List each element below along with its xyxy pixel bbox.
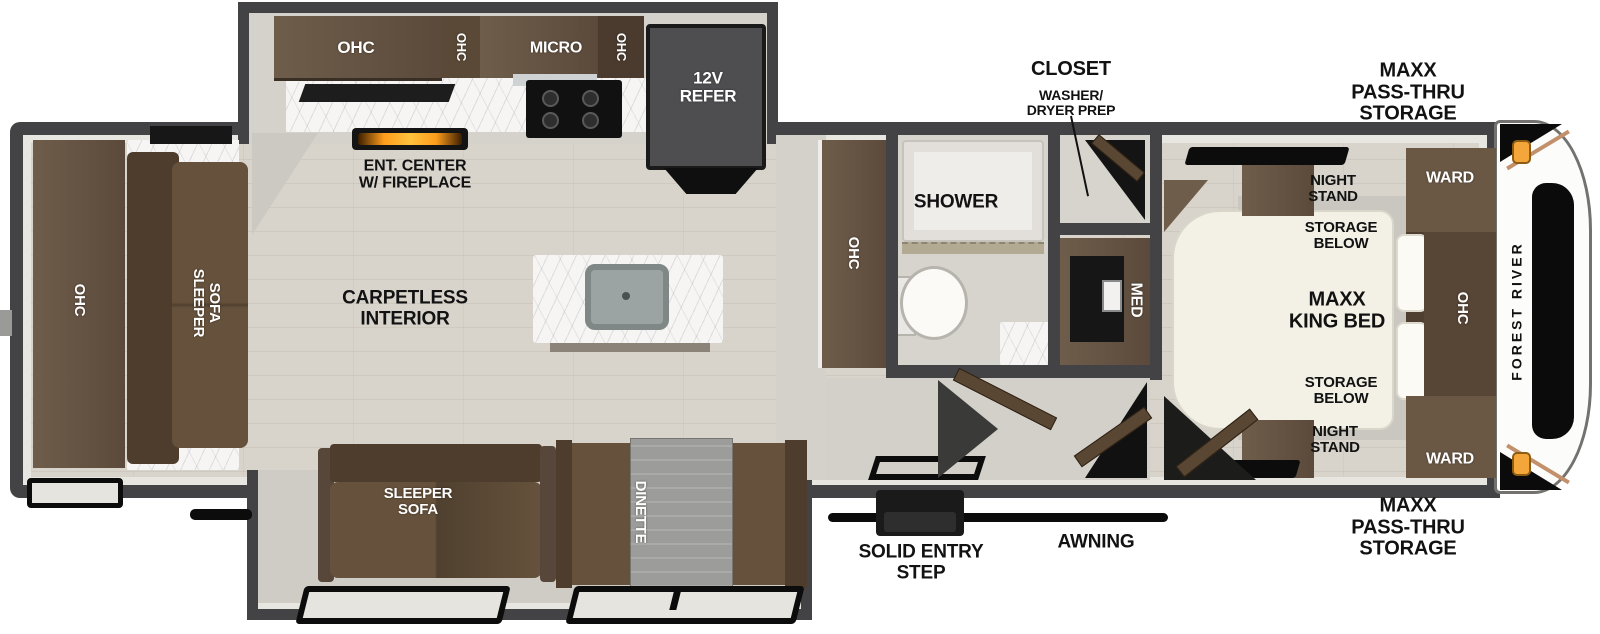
label-pantry-ohc: OHC bbox=[845, 237, 861, 270]
slide-window-dinette bbox=[565, 586, 804, 624]
cooktop-burner-4 bbox=[582, 112, 599, 129]
label-carpetless: CARPETLESS INTERIOR bbox=[342, 288, 468, 329]
cooktop-burner-1 bbox=[542, 90, 559, 107]
night-stand-top bbox=[1242, 158, 1314, 216]
windshield-decal bbox=[1532, 183, 1574, 439]
slide-window-sofa bbox=[295, 586, 510, 624]
hitch-stub bbox=[0, 310, 12, 336]
slide-sofa-back bbox=[330, 444, 542, 482]
sink-drain bbox=[622, 292, 630, 300]
med-basin bbox=[1102, 280, 1122, 312]
bath-wall-left bbox=[886, 135, 898, 378]
label-dinette: DINETTE bbox=[632, 481, 648, 544]
dinette-bench-left bbox=[572, 443, 630, 585]
label-entry-step: SOLID ENTRY STEP bbox=[859, 542, 984, 583]
label-ward-bottom: WARD bbox=[1426, 450, 1474, 467]
bath-closet-wall bbox=[1048, 135, 1060, 378]
label-night-stand-bottom: NIGHT STAND bbox=[1310, 424, 1360, 456]
slide-sofa-arm-right bbox=[540, 446, 556, 582]
label-bed-ohc: OHC bbox=[1454, 292, 1470, 325]
bedroom-wall bbox=[1150, 135, 1162, 380]
cooktop-burner-2 bbox=[582, 90, 599, 107]
label-closet-title: CLOSET bbox=[1031, 59, 1111, 81]
fireplace-flame bbox=[358, 133, 462, 145]
label-ohc-b: OHC bbox=[454, 33, 468, 61]
dinette-bench-right bbox=[733, 443, 785, 585]
brand-logo-text: FOREST RIVER bbox=[1509, 241, 1524, 380]
bedroom-window-top bbox=[1184, 147, 1349, 165]
label-closet-sub: WASHER/ DRYER PREP bbox=[1027, 88, 1116, 118]
marker-light-bottom bbox=[1512, 452, 1531, 476]
bath-wall-bottom bbox=[886, 365, 1162, 378]
label-storage-bottom: STORAGE BELOW bbox=[1305, 375, 1378, 407]
label-rear-sofa: SLEEPER SOFA bbox=[190, 269, 222, 338]
label-ohc-a: OHC bbox=[337, 39, 374, 57]
dinette-bench-right-back bbox=[785, 440, 807, 588]
label-med: MED bbox=[1127, 283, 1144, 318]
label-ent-center: ENT. CENTER W/ FIREPLACE bbox=[359, 158, 471, 193]
rv-floorplan: FOREST RIVER bbox=[0, 0, 1600, 634]
dinette-bench-left-back bbox=[556, 440, 572, 588]
label-king-bed: MAXX KING BED bbox=[1289, 289, 1385, 332]
label-pass-thru-top: MAXX PASS-THRU STORAGE bbox=[1351, 61, 1464, 126]
cooktop bbox=[526, 80, 622, 138]
label-ward-top: WARD bbox=[1426, 169, 1474, 186]
rear-tv bbox=[150, 126, 232, 144]
entry-step-well bbox=[868, 456, 986, 480]
closet-wall-bottom bbox=[1048, 223, 1162, 235]
rear-window bbox=[27, 478, 123, 508]
label-micro: MICRO bbox=[530, 39, 582, 56]
label-ohc-c: OHC bbox=[614, 33, 628, 61]
label-refer: 12V REFER bbox=[680, 70, 737, 107]
bath-vanity bbox=[1000, 322, 1048, 365]
cooktop-burner-3 bbox=[542, 112, 559, 129]
rear-bumper bbox=[190, 509, 252, 520]
label-awning: AWNING bbox=[1058, 533, 1135, 554]
toilet bbox=[900, 266, 968, 340]
entry-step-tread bbox=[884, 512, 956, 532]
tv-slab bbox=[299, 84, 456, 102]
label-rear-ohc: OHC bbox=[71, 284, 87, 317]
shower-threshold bbox=[902, 242, 1044, 254]
marker-light-top bbox=[1512, 140, 1531, 164]
label-pass-thru-bottom: MAXX PASS-THRU STORAGE bbox=[1351, 496, 1464, 561]
label-storage-top: STORAGE BELOW bbox=[1305, 220, 1378, 252]
label-slide-sofa: SLEEPER SOFA bbox=[384, 486, 453, 518]
label-night-stand-top: NIGHT STAND bbox=[1308, 173, 1358, 205]
wardrobe-top bbox=[1406, 148, 1496, 232]
label-shower: SHOWER bbox=[914, 193, 998, 214]
